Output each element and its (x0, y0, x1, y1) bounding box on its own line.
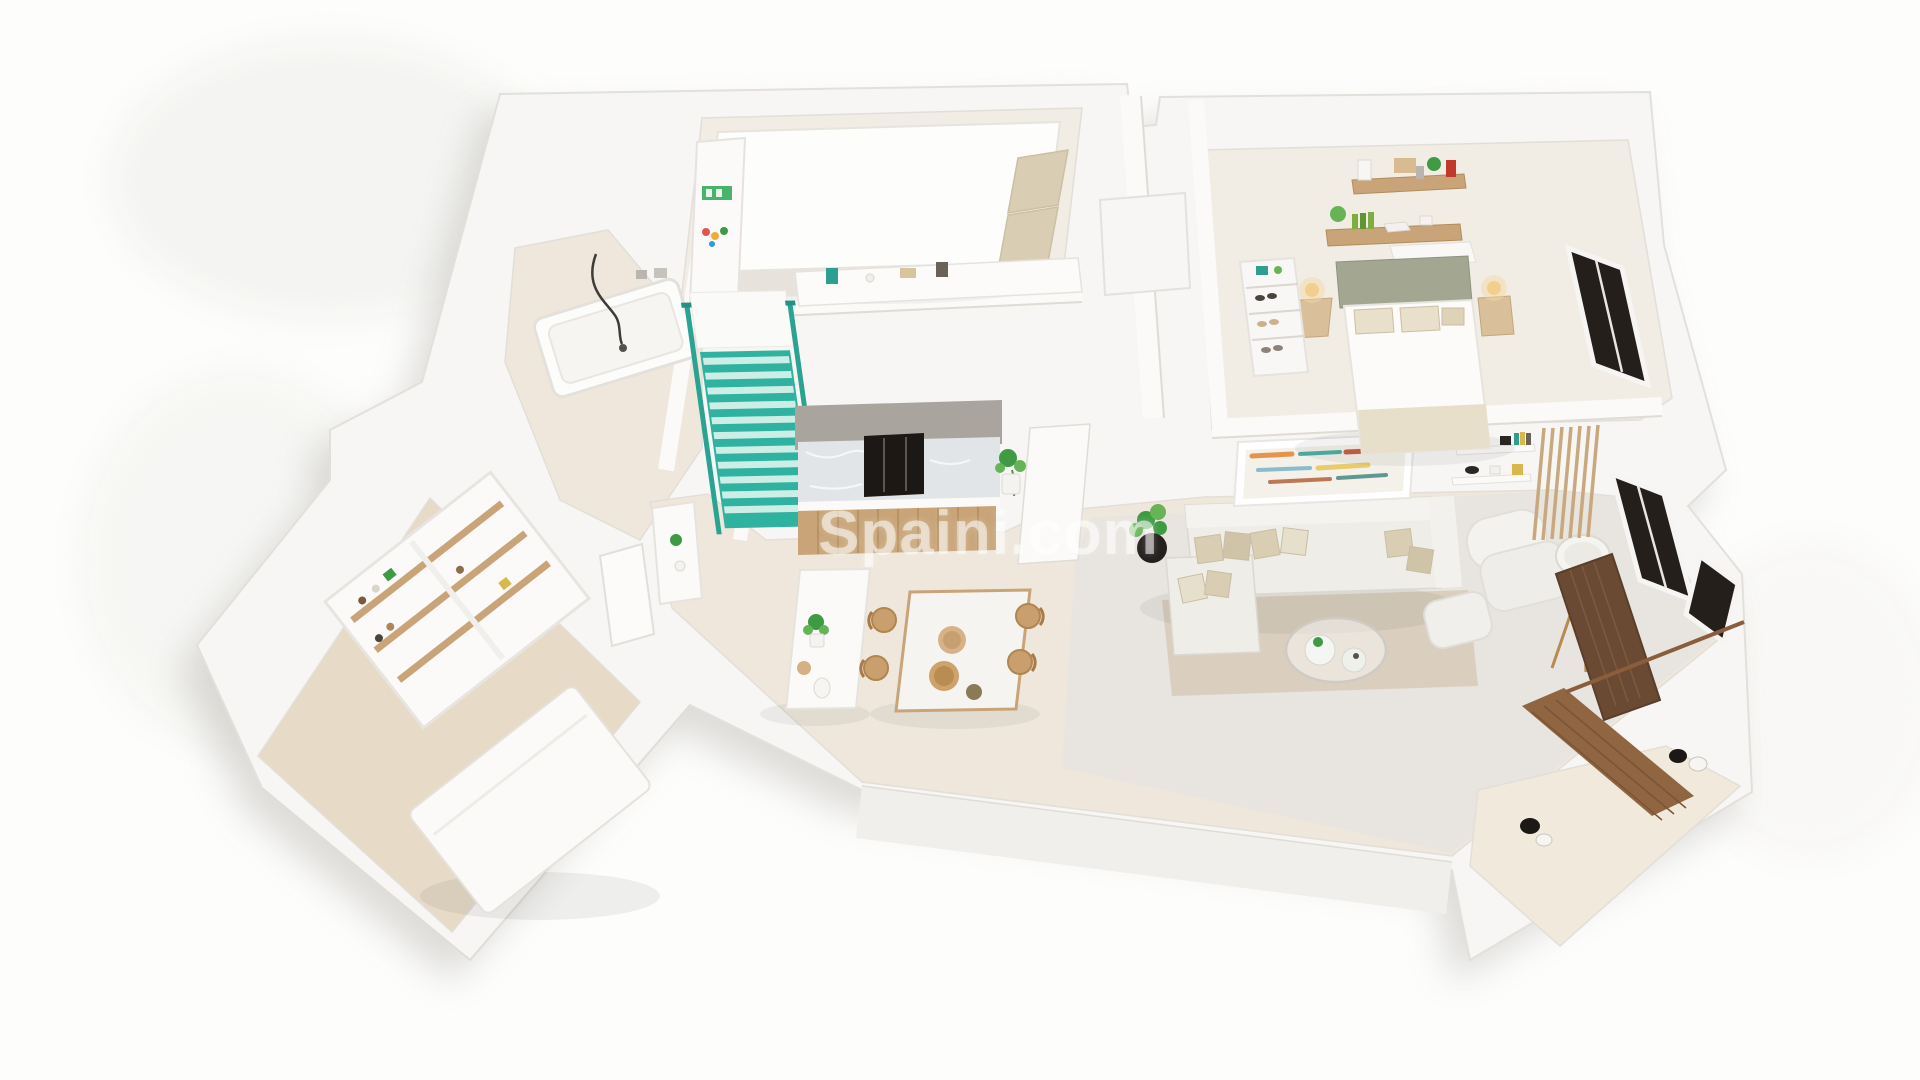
floor-plan-stage: Spaini.com (0, 0, 1920, 1080)
coffee-table (1286, 618, 1386, 682)
sofa-chaise (1166, 555, 1260, 655)
foot-blanket (1358, 404, 1490, 454)
basket (797, 661, 811, 675)
vase (814, 678, 830, 698)
stair-landing (690, 291, 794, 348)
watermark: Spaini.com (818, 498, 1159, 569)
hall-console (652, 502, 702, 604)
built-in-appliance (864, 433, 924, 497)
red-book (1446, 160, 1456, 177)
shelf-unit-top-bedroom (690, 138, 745, 304)
closet-top-bedroom (1100, 193, 1190, 295)
dining-table (896, 590, 1030, 711)
